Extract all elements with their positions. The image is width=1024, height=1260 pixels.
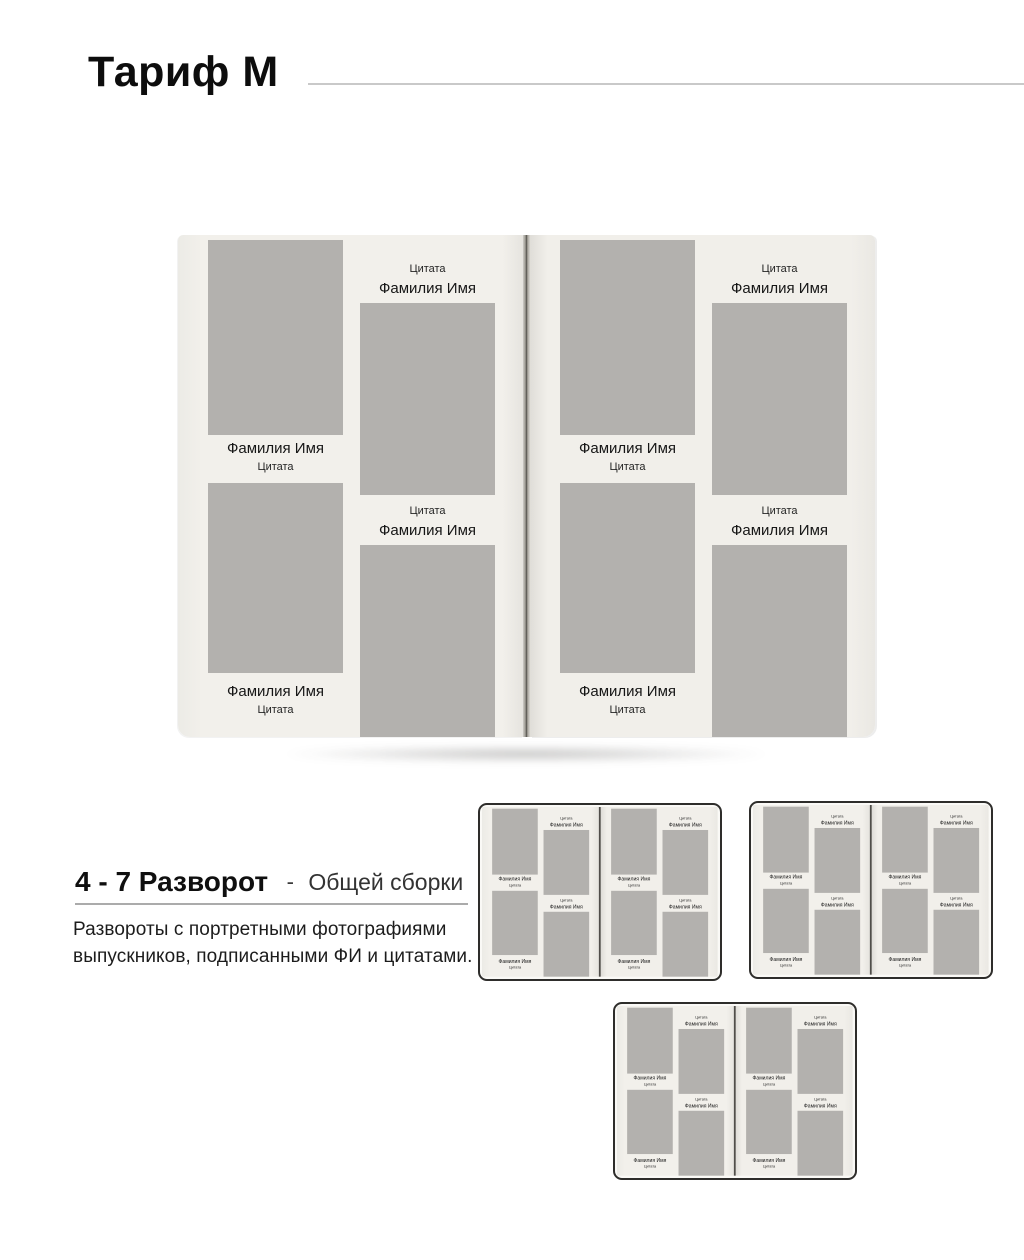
small-book-mockup-3: Фамилия Имя Цитата Фамилия Имя Цитата Ци… [613, 1002, 857, 1180]
caption-name: Фамилия Имя [485, 959, 544, 964]
photo-placeholder [360, 545, 495, 737]
caption-quote: Цитата [540, 462, 715, 473]
caption-quote: Цитата [875, 964, 934, 968]
photo-caption: Фамилия Имя Цитата [756, 957, 815, 968]
caption-name: Фамилия Имя [692, 281, 867, 296]
photo-placeholder [933, 910, 979, 975]
small-book-mockup-2: Фамилия Имя Цитата Фамилия Имя Цитата Ци… [749, 801, 993, 979]
caption-name: Фамилия Имя [188, 684, 363, 699]
section-heading-range: 4 - 7 Разворот [75, 866, 268, 897]
photo-placeholder [611, 809, 657, 875]
caption-name: Фамилия Имя [692, 523, 867, 538]
photo-placeholder [679, 1029, 725, 1094]
photo-caption: Фамилия Имя Цитата [485, 959, 544, 970]
photo-placeholder [360, 303, 495, 495]
description-line-2: выпускников, подписанными ФИ и цитатами. [73, 946, 473, 967]
caption-name: Фамилия Имя [808, 821, 867, 826]
caption-name: Фамилия Имя [739, 1076, 798, 1081]
caption-quote: Цитата [756, 882, 815, 886]
photo-caption: Цитата Фамилия Имя [692, 264, 867, 296]
caption-name: Фамилия Имя [656, 823, 715, 828]
caption-quote: Цитата [620, 1165, 679, 1169]
photo-caption: Цитата Фамилия Имя [656, 899, 715, 910]
photo-caption: Цитата Фамилия Имя [340, 506, 515, 538]
photo-placeholder [712, 545, 847, 737]
book-spread: Фамилия Имя Цитата Фамилия Имя Цитата Ци… [617, 1006, 853, 1176]
caption-name: Фамилия Имя [340, 281, 515, 296]
caption-name: Фамилия Имя [537, 823, 596, 828]
caption-name: Фамилия Имя [188, 441, 363, 456]
photo-placeholder [746, 1008, 792, 1074]
photo-placeholder [797, 1029, 843, 1094]
caption-quote: Цитата [927, 815, 986, 819]
photo-placeholder [746, 1090, 792, 1154]
caption-name: Фамилия Имя [540, 441, 715, 456]
caption-name: Фамилия Имя [672, 1022, 731, 1027]
photo-placeholder [208, 483, 343, 673]
book-page-left: Фамилия Имя Цитата Фамилия Имя Цитата Ци… [482, 807, 599, 977]
book-page-right: Фамилия Имя Цитата Фамилия Имя Цитата Ци… [601, 807, 718, 977]
photo-caption: Цитата Фамилия Имя [672, 1016, 731, 1027]
photo-placeholder [933, 828, 979, 893]
caption-quote: Цитата [927, 897, 986, 901]
photo-placeholder [815, 910, 861, 975]
caption-quote: Цитата [188, 462, 363, 473]
photo-placeholder [627, 1090, 673, 1154]
photo-caption: Фамилия Имя Цитата [485, 877, 544, 888]
caption-name: Фамилия Имя [540, 684, 715, 699]
book-shadow [186, 742, 866, 766]
caption-quote: Цитата [656, 817, 715, 821]
photo-caption: Цитата Фамилия Имя [692, 506, 867, 538]
caption-name: Фамилия Имя [791, 1103, 850, 1108]
photo-placeholder [544, 912, 590, 977]
book-page-right: Фамилия Имя Цитата Фамилия Имя Цитата Ци… [736, 1006, 853, 1176]
photo-caption: Цитата Фамилия Имя [656, 817, 715, 828]
caption-quote: Цитата [791, 1016, 850, 1020]
photo-placeholder [560, 483, 695, 673]
photo-placeholder [662, 830, 708, 895]
photo-caption: Фамилия Имя Цитата [875, 957, 934, 968]
caption-name: Фамилия Имя [537, 904, 596, 909]
caption-quote: Цитата [739, 1165, 798, 1169]
caption-name: Фамилия Имя [756, 875, 815, 880]
section-heading-type: Общей сборки [308, 869, 463, 895]
photo-caption: Фамилия Имя Цитата [188, 684, 363, 716]
caption-quote: Цитата [188, 705, 363, 716]
photo-placeholder [763, 889, 809, 953]
page-title: Тариф М [88, 48, 279, 97]
main-book-mockup: Фамилия Имя Цитата Фамилия Имя Цитата Ци… [178, 235, 875, 737]
photo-placeholder [763, 807, 809, 873]
photo-caption: Цитата Фамилия Имя [808, 897, 867, 908]
small-book-mockup-1: Фамилия Имя Цитата Фамилия Имя Цитата Ци… [478, 803, 722, 981]
book-page-left: Фамилия Имя Цитата Фамилия Имя Цитата Ци… [753, 805, 870, 975]
photo-caption: Цитата Фамилия Имя [340, 264, 515, 296]
caption-quote: Цитата [604, 966, 663, 970]
photo-caption: Фамилия Имя Цитата [620, 1076, 679, 1087]
caption-name: Фамилия Имя [739, 1158, 798, 1163]
photo-caption: Фамилия Имя Цитата [540, 441, 715, 473]
title-rule [308, 83, 1024, 85]
section-rule [75, 903, 468, 905]
photo-placeholder [815, 828, 861, 893]
photo-caption: Цитата Фамилия Имя [927, 897, 986, 908]
description-line-1: Развороты с портретными фотографиями [73, 919, 446, 940]
caption-quote: Цитата [672, 1016, 731, 1020]
caption-quote: Цитата [756, 964, 815, 968]
caption-name: Фамилия Имя [604, 959, 663, 964]
caption-quote: Цитата [540, 705, 715, 716]
page-canvas: Тариф М Фамилия Имя Цитата Фамилия Имя Ц… [0, 0, 1024, 1260]
caption-name: Фамилия Имя [927, 902, 986, 907]
section-heading: 4 - 7 Разворот - Общей сборки [75, 866, 463, 898]
photo-placeholder [492, 891, 538, 955]
photo-placeholder [712, 303, 847, 495]
caption-quote: Цитата [537, 899, 596, 903]
caption-quote: Цитата [656, 899, 715, 903]
caption-quote: Цитата [604, 884, 663, 888]
caption-name: Фамилия Имя [340, 523, 515, 538]
caption-name: Фамилия Имя [875, 875, 934, 880]
caption-name: Фамилия Имя [485, 877, 544, 882]
photo-placeholder [882, 807, 928, 873]
caption-name: Фамилия Имя [620, 1076, 679, 1081]
caption-name: Фамилия Имя [656, 904, 715, 909]
caption-quote: Цитата [672, 1098, 731, 1102]
caption-quote: Цитата [692, 506, 867, 517]
caption-name: Фамилия Имя [756, 957, 815, 962]
book-page-left: Фамилия Имя Цитата Фамилия Имя Цитата Ци… [617, 1006, 734, 1176]
photo-caption: Цитата Фамилия Имя [537, 817, 596, 828]
caption-quote: Цитата [692, 264, 867, 275]
caption-quote: Цитата [485, 966, 544, 970]
photo-placeholder [492, 809, 538, 875]
caption-name: Фамилия Имя [808, 902, 867, 907]
photo-caption: Цитата Фамилия Имя [791, 1016, 850, 1027]
photo-placeholder [662, 912, 708, 977]
caption-name: Фамилия Имя [927, 821, 986, 826]
book-page-left: Фамилия Имя Цитата Фамилия Имя Цитата Ци… [178, 235, 523, 737]
photo-placeholder [679, 1111, 725, 1176]
caption-quote: Цитата [340, 264, 515, 275]
photo-caption: Цитата Фамилия Имя [672, 1098, 731, 1109]
caption-name: Фамилия Имя [620, 1158, 679, 1163]
photo-caption: Фамилия Имя Цитата [739, 1076, 798, 1087]
caption-quote: Цитата [808, 815, 867, 819]
book-spine [523, 235, 530, 737]
photo-caption: Фамилия Имя Цитата [756, 875, 815, 886]
photo-placeholder [797, 1111, 843, 1176]
photo-placeholder [208, 240, 343, 435]
photo-caption: Фамилия Имя Цитата [620, 1158, 679, 1169]
section-description: Развороты с портретными фотографиями вып… [73, 917, 473, 970]
book-spread: Фамилия Имя Цитата Фамилия Имя Цитата Ци… [753, 805, 989, 975]
book-page-right: Фамилия Имя Цитата Фамилия Имя Цитата Ци… [872, 805, 989, 975]
caption-name: Фамилия Имя [791, 1022, 850, 1027]
caption-quote: Цитата [875, 882, 934, 886]
photo-caption: Фамилия Имя Цитата [604, 959, 663, 970]
photo-caption: Цитата Фамилия Имя [808, 815, 867, 826]
caption-quote: Цитата [791, 1098, 850, 1102]
photo-caption: Цитата Фамилия Имя [791, 1098, 850, 1109]
photo-caption: Цитата Фамилия Имя [927, 815, 986, 826]
caption-quote: Цитата [485, 884, 544, 888]
caption-quote: Цитата [739, 1083, 798, 1087]
caption-quote: Цитата [620, 1083, 679, 1087]
book-page-right: Фамилия Имя Цитата Фамилия Имя Цитата Ци… [530, 235, 875, 737]
photo-placeholder [627, 1008, 673, 1074]
photo-placeholder [544, 830, 590, 895]
caption-name: Фамилия Имя [672, 1103, 731, 1108]
caption-name: Фамилия Имя [604, 877, 663, 882]
caption-quote: Цитата [808, 897, 867, 901]
photo-caption: Цитата Фамилия Имя [537, 899, 596, 910]
photo-caption: Фамилия Имя Цитата [604, 877, 663, 888]
photo-placeholder [560, 240, 695, 435]
photo-placeholder [611, 891, 657, 955]
book-spread: Фамилия Имя Цитата Фамилия Имя Цитата Ци… [482, 807, 718, 977]
caption-quote: Цитата [537, 817, 596, 821]
caption-quote: Цитата [340, 506, 515, 517]
photo-caption: Фамилия Имя Цитата [739, 1158, 798, 1169]
section-heading-dash: - [287, 869, 294, 894]
caption-name: Фамилия Имя [875, 957, 934, 962]
photo-caption: Фамилия Имя Цитата [540, 684, 715, 716]
photo-caption: Фамилия Имя Цитата [188, 441, 363, 473]
book-spread: Фамилия Имя Цитата Фамилия Имя Цитата Ци… [178, 235, 875, 737]
photo-placeholder [882, 889, 928, 953]
photo-caption: Фамилия Имя Цитата [875, 875, 934, 886]
